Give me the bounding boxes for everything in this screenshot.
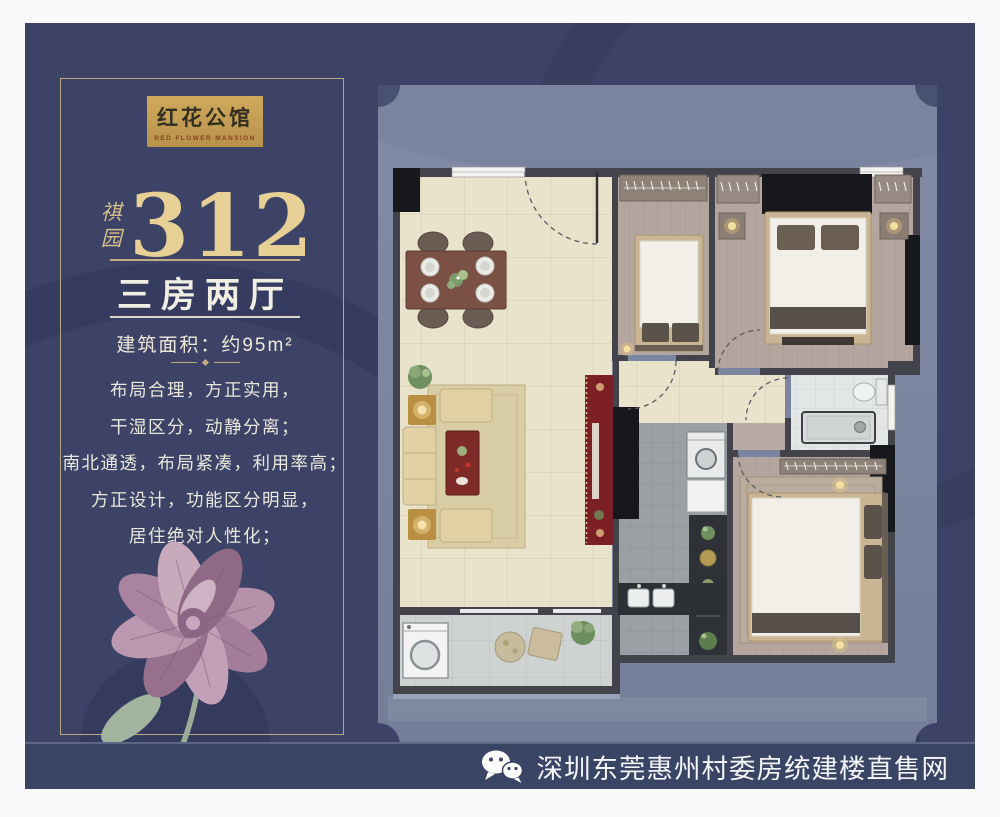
lamp [836,481,844,489]
armchair [440,389,492,422]
pillow [672,323,699,342]
brand-title: 红花公馆 [157,102,253,132]
lamp [728,222,736,230]
unit-number: 312 [129,192,315,263]
ornament-line [171,362,197,363]
pillow [864,545,882,579]
tv-console [592,423,599,499]
living-room-set [403,385,525,548]
layout-type: 三房两厅 [52,267,358,318]
building-area: 建筑面积：约95m² [52,330,358,357]
headboard-wall [762,174,872,214]
unit-number-block: 祺园 312 [52,169,358,263]
feature-line: 南北通透，布局紧凑，利用率高； [35,445,375,482]
chair [527,627,562,661]
bed-throw [770,307,866,329]
wechat-icon [481,749,525,785]
bench [782,337,854,345]
diamond-icon [201,359,208,366]
pillow [777,225,815,250]
bed-throw [752,613,860,633]
duvet [640,241,698,327]
footer-bar: 深圳东莞惠州村委房统建楼直售网 [25,742,975,789]
poster: 红花公馆 RED FLOWER MANSION 祺园 312 三房两厅 建筑面积… [25,23,975,789]
ornament-line [214,362,240,363]
unit-prefix: 祺园 [95,201,125,263]
brand-subtitle: RED FLOWER MANSION [154,135,255,142]
bedroom3 [738,453,888,653]
feature-line: 干湿区分，动静分离； [35,409,375,446]
lamp [836,641,844,649]
sink [653,589,674,607]
lamp [624,346,631,353]
headboard [882,493,888,643]
sink [628,589,649,607]
vestibule-floor [733,423,785,450]
pillow [821,225,859,250]
corridor-floor [715,375,785,423]
toilet-tank [876,379,887,405]
sofa [403,427,436,505]
divider-line [110,259,300,261]
ornament-divider [52,360,358,365]
floor-plan-panel [378,85,937,745]
brand-logo: 红花公馆 RED FLOWER MANSION [147,96,263,147]
feature-line: 布局合理，方正实用， [35,372,375,409]
toilet-bowl [853,383,875,401]
pillow [864,505,882,539]
floor-plan-svg [378,85,937,745]
cabinet [687,480,725,512]
pillow [642,323,669,342]
planter [495,632,525,662]
footer-site-name: 深圳东莞惠州村委房统建楼直售网 [537,747,950,786]
divider-line [110,316,300,318]
armchair [440,509,492,542]
drain [855,422,866,433]
coffee-table [446,431,479,495]
lamp [890,222,898,230]
tv-accent-wall [585,375,613,545]
